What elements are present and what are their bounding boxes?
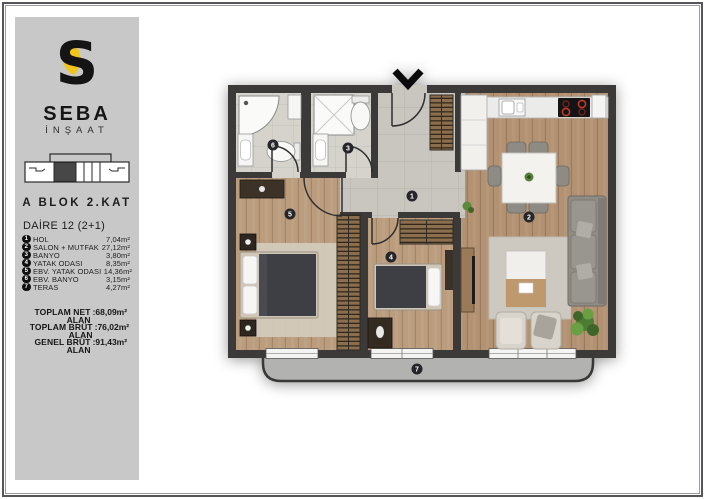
- tv: [472, 256, 475, 304]
- hall-furniture: [430, 95, 453, 150]
- building-location-diagram: [24, 153, 130, 183]
- highlighted-unit: [54, 163, 76, 182]
- shower-head: [244, 101, 248, 105]
- room-label-hol: 1: [407, 191, 418, 202]
- total-value: :91,43m²: [93, 339, 133, 354]
- room-label-ebv-banyo: 6: [268, 140, 279, 151]
- room-label-banyo: 3: [343, 143, 354, 154]
- logo-s-letter: S: [56, 29, 99, 97]
- window-master-bedroom: [266, 349, 318, 359]
- pillow: [243, 286, 257, 314]
- sidebar: S SEBA İNŞAAT A BLOK 2.KAT DAİRE 12 (2+1…: [15, 17, 139, 480]
- svg-text:6: 6: [271, 143, 275, 150]
- totals: TOPLAM NET ALAN :68,09m² TOPLAM BRÜT ALA…: [15, 309, 139, 354]
- dining-chair: [488, 166, 501, 186]
- svg-text:3: 3: [346, 146, 350, 153]
- page-canvas: S SEBA İNŞAAT A BLOK 2.KAT DAİRE 12 (2+1…: [0, 0, 705, 499]
- room-number-badge: 1: [22, 235, 31, 244]
- svg-text:1: 1: [410, 194, 414, 201]
- room-number-badge: 5: [22, 267, 31, 276]
- brand-name: SEBA: [43, 103, 111, 125]
- apartment: 1 2 3 4 5: [228, 71, 616, 381]
- block-title: A BLOK 2.KAT: [22, 197, 131, 210]
- svg-text:4: 4: [389, 255, 393, 262]
- total-row: GENEL BRÜT ALAN :91,43m²: [15, 339, 133, 354]
- sink-basin: [241, 140, 251, 160]
- dining-chair: [556, 166, 569, 186]
- brand-subtitle: İNŞAAT: [45, 125, 109, 137]
- sink-basin: [316, 140, 326, 160]
- total-label: GENEL BRÜT ALAN: [15, 339, 91, 354]
- building-strip: [25, 162, 129, 182]
- svg-text:2: 2: [527, 215, 531, 222]
- room-name: TERAS: [33, 283, 59, 292]
- unit-title: DAİRE 12 (2+1): [23, 220, 105, 232]
- room-label-ebv-yatak: 5: [285, 209, 296, 220]
- table-book: [519, 283, 533, 293]
- windows: [266, 349, 576, 359]
- room-label-salon: 2: [524, 212, 535, 223]
- toilet: [351, 102, 370, 130]
- room-area: 4,27m²: [106, 283, 130, 292]
- svg-text:5: 5: [288, 212, 292, 219]
- room-label-teras: 7: [412, 364, 423, 375]
- pillow: [428, 268, 440, 306]
- room-number-badge: 4: [22, 259, 31, 268]
- entrance-arrow-icon: [395, 71, 421, 85]
- tall-cabinet: [461, 95, 487, 170]
- room-list-item: 7 TERAS 4,27m²: [15, 283, 139, 291]
- room-number-badge: 6: [22, 275, 31, 284]
- duvet: [259, 254, 316, 316]
- bath-shelf: [288, 95, 301, 119]
- room-list: 1 HOL 7,04m² 2 SALON + MUTFAK 27,12m² 3 …: [15, 235, 139, 291]
- pillow: [243, 256, 257, 284]
- seba-logo-icon: S: [44, 29, 110, 101]
- sofa-pillow: [575, 221, 593, 239]
- sofa-pillow: [576, 263, 593, 280]
- svg-text:7: 7: [415, 367, 419, 374]
- room-label-yatak: 4: [386, 252, 397, 263]
- end-cabinet: [592, 95, 606, 118]
- window-bedroom: [371, 349, 433, 359]
- room-number-badge: 2: [22, 243, 31, 252]
- window-living-terrace-door: [489, 349, 576, 359]
- duvet: [376, 266, 426, 308]
- desk: [445, 250, 453, 290]
- room-number-badge: 7: [22, 283, 31, 292]
- room-number-badge: 3: [22, 251, 31, 260]
